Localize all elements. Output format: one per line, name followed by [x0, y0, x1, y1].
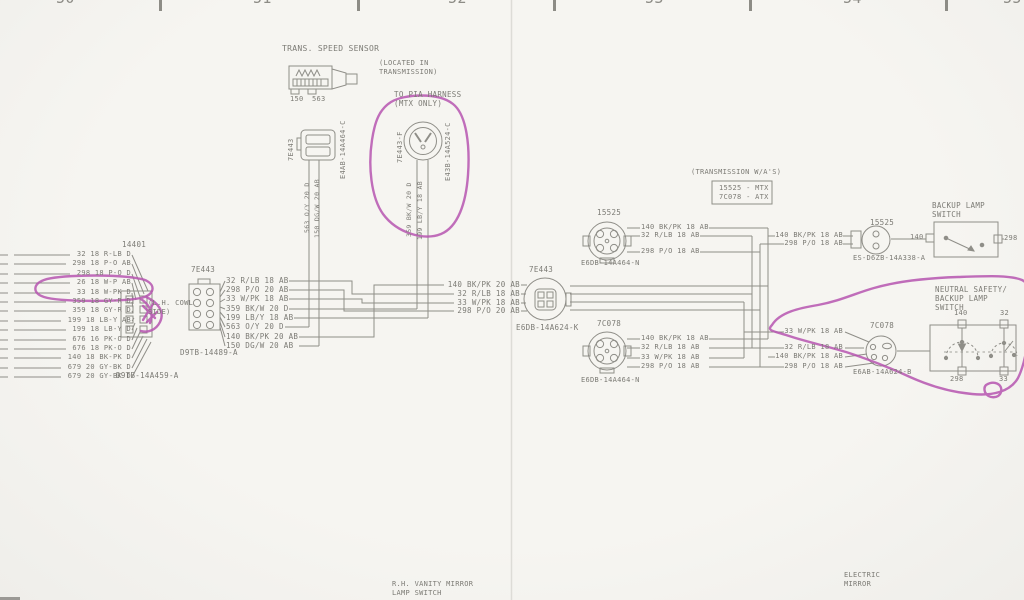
mtx-wire-3: 298 P/O 18 AB: [641, 248, 700, 255]
atx-wire-4: 298 P/O 18 AB: [641, 363, 700, 370]
sensor-pin-563: 563: [312, 96, 326, 103]
connector-7e443a-part: E4AB-14A464-C: [340, 120, 347, 179]
wire-150-vertical: 150 DG/W 20 AB: [314, 179, 321, 238]
cowl-wire-2: 298 18 P-O AB: [35, 260, 131, 267]
connector-7e443a-symbol: [297, 130, 335, 163]
mtx-inline-wire-2: 298 P/O 18 AB: [775, 240, 843, 247]
connector-7c078-part: E6DB-14A464-N: [581, 377, 640, 384]
backup-switch-title-line2: SWITCH: [932, 211, 961, 219]
neutral-switch-title-line2: BACKUP LAMP: [935, 295, 988, 303]
connector-7c078-symbol: [583, 332, 631, 373]
cowl-wire-1: 32 18 R-LB D: [35, 251, 131, 258]
cowl-wire-10: 676 16 PK-O D: [35, 336, 131, 343]
atx-inline-wire-1: 33 W/PK 18 AB: [775, 328, 843, 335]
cowl-side-note-line2: SIDE): [148, 309, 171, 316]
wire-lines: [0, 163, 1004, 377]
connector-7e443f-label: 7E443-F: [397, 131, 404, 163]
connector-7e443k-part: E6DB-14A624-K: [516, 324, 579, 332]
harness-wire-3: 33 W/PK 18 AB: [226, 295, 289, 303]
cowl-wire-13: 679 20 GY-BK D: [35, 364, 131, 371]
connector-15525-part: E6DB-14A464-N: [581, 260, 640, 267]
harness-wire-7: 140 BK/PK 20 AB: [226, 333, 298, 341]
pia-note-line1: TO PIA HARNESS: [394, 91, 461, 99]
ruler-number-52: 52: [448, 0, 467, 6]
neutral-terminal-298: 298: [950, 376, 964, 383]
ruler-number-50: 50: [56, 0, 75, 6]
trans-box-mtx-row: 15525 - MTX: [719, 185, 769, 192]
wire-563-vertical: 563 O/Y 20 D: [304, 182, 311, 233]
atx-wire-2: 32 R/LB 18 AB: [641, 344, 700, 351]
ruler-ticks: [159, 0, 948, 11]
sensor-pin-150: 150: [290, 96, 304, 103]
cowl-wire-3: 298 18 P-O D: [35, 270, 131, 277]
atx-wire-3: 33 W/PK 18 AB: [641, 354, 700, 361]
cowl-wire-12: 140 18 BK-PK D: [35, 354, 131, 361]
mtx-wire-1: 140 BK/PK 18 AB: [641, 224, 709, 231]
cowl-side-note-line1: (L.H. COWL: [148, 300, 193, 307]
wire-199-vertical: 199 LB/Y 18 AB: [417, 181, 424, 240]
backup-terminal-140: 140: [910, 234, 924, 241]
cowl-wire-7: 359 18 GY-R D: [35, 307, 131, 314]
connector-15525b-label: 15525: [870, 219, 894, 227]
ruler-number-51: 51: [253, 0, 272, 6]
backup-switch-title-line1: BACKUP LAMP: [932, 202, 985, 210]
connector-7e443b-symbol: [189, 279, 220, 330]
connector-14401-part: D9TB-14A459-A: [116, 372, 179, 380]
vanity-mirror-label-line2: LAMP SWITCH: [392, 590, 442, 597]
harness-wire-4: 359 BK/W 20 D: [226, 305, 289, 313]
electric-mirror-label-line2: MIRROR: [844, 581, 871, 588]
connector-15525-symbol: [583, 222, 631, 263]
cowl-wire-11: 676 18 PK-O D: [35, 345, 131, 352]
connector-7e443a-label: 7E443: [288, 138, 295, 161]
atx-wire-1: 140 BK/PK 18 AB: [641, 335, 709, 342]
located-note-line1: (LOCATED IN: [379, 60, 429, 67]
located-note-line2: TRANSMISSION): [379, 69, 438, 76]
neutral-switch-title-line1: NEUTRAL SAFETY/: [935, 286, 1007, 294]
trunk-wire-1: 140 BK/PK 20 AB: [430, 281, 520, 289]
harness-wire-6: 563 O/Y 20 D: [226, 323, 284, 331]
atx-inline-wire-2: 32 R/LB 18 AB: [775, 344, 843, 351]
cowl-wire-9: 199 18 LB-Y D: [35, 326, 131, 333]
trans-speed-sensor-symbol: [289, 66, 357, 94]
atx-inline-wire-4: 298 P/O 18 AB: [775, 363, 843, 370]
cowl-wire-4: 26 18 W-P AB: [35, 279, 131, 286]
connector-7e443f-symbol: [404, 122, 442, 163]
connector-7e443b-label: 7E443: [191, 266, 215, 274]
transmission-wa-note: (TRANSMISSION W/A'S): [691, 169, 781, 176]
harness-wire-1: 32 R/LB 18 AB: [226, 277, 289, 285]
harness-wire-2: 298 P/O 20 AB: [226, 286, 289, 294]
harness-wire-5: 199 LB/Y 18 AB: [226, 314, 293, 322]
backup-terminal-298: 298: [1004, 235, 1018, 242]
connector-7e443f-part: E43B-14A524-C: [445, 122, 452, 181]
connector-7c078b-part: E6AB-14A624-B: [853, 369, 912, 376]
neutral-terminal-32: 32: [1000, 310, 1009, 317]
backup-lamp-switch-symbol: [926, 222, 1002, 257]
ruler-number-55: 55: [1003, 0, 1022, 6]
mtx-wire-2: 32 R/LB 18 AB: [641, 232, 700, 239]
ruler-number-54: 54: [843, 0, 862, 6]
cowl-wire-8: 199 18 LB-Y AB: [35, 317, 131, 324]
connector-15525b-part: ES-D6ZB-14A338-A: [853, 255, 925, 262]
connector-15525b-symbol: [851, 226, 890, 254]
connector-7e443k-symbol: [524, 278, 571, 320]
trunk-wire-2: 32 R/LB 18 AB: [430, 290, 520, 298]
cowl-wire-6: 359 18 GY-R D: [35, 298, 131, 305]
electric-mirror-label-line1: ELECTRIC: [844, 572, 880, 579]
annotation-small-loop: [984, 383, 1001, 397]
neutral-terminal-140: 140: [954, 310, 968, 317]
connector-7c078-label: 7C078: [597, 320, 621, 328]
wiring-diagram-page: 505152535455TRANS. SPEED SENSOR150563(LO…: [0, 0, 1024, 600]
connector-7e443k-label: 7E443: [529, 266, 553, 274]
vanity-mirror-label-line1: R.H. VANITY MIRROR: [392, 581, 473, 588]
connector-15525-label: 15525: [597, 209, 621, 217]
neutral-terminal-33: 33: [999, 376, 1008, 383]
connector-7e443b-part: D9TB-14489-A: [180, 349, 238, 357]
mtx-inline-wire-1: 140 BK/PK 18 AB: [775, 232, 843, 239]
pia-note-line2: (MTX ONLY): [394, 100, 442, 108]
wire-359-vertical: 359 BK/W 20 D: [406, 182, 413, 237]
neutral-safety-switch-symbol: [930, 320, 1017, 375]
connector-14401-label: 14401: [122, 241, 146, 249]
trans-box-atx-row: 7C078 - ATX: [719, 194, 769, 201]
trans-speed-sensor-title: TRANS. SPEED SENSOR: [282, 45, 379, 53]
atx-inline-wire-3: 140 BK/PK 18 AB: [775, 353, 843, 360]
ruler-number-53: 53: [645, 0, 664, 6]
cowl-wire-5: 33 18 W-PK D: [35, 289, 131, 296]
trunk-wire-4: 298 P/O 20 AB: [430, 307, 520, 315]
connector-7c078b-label: 7C078: [870, 322, 894, 330]
